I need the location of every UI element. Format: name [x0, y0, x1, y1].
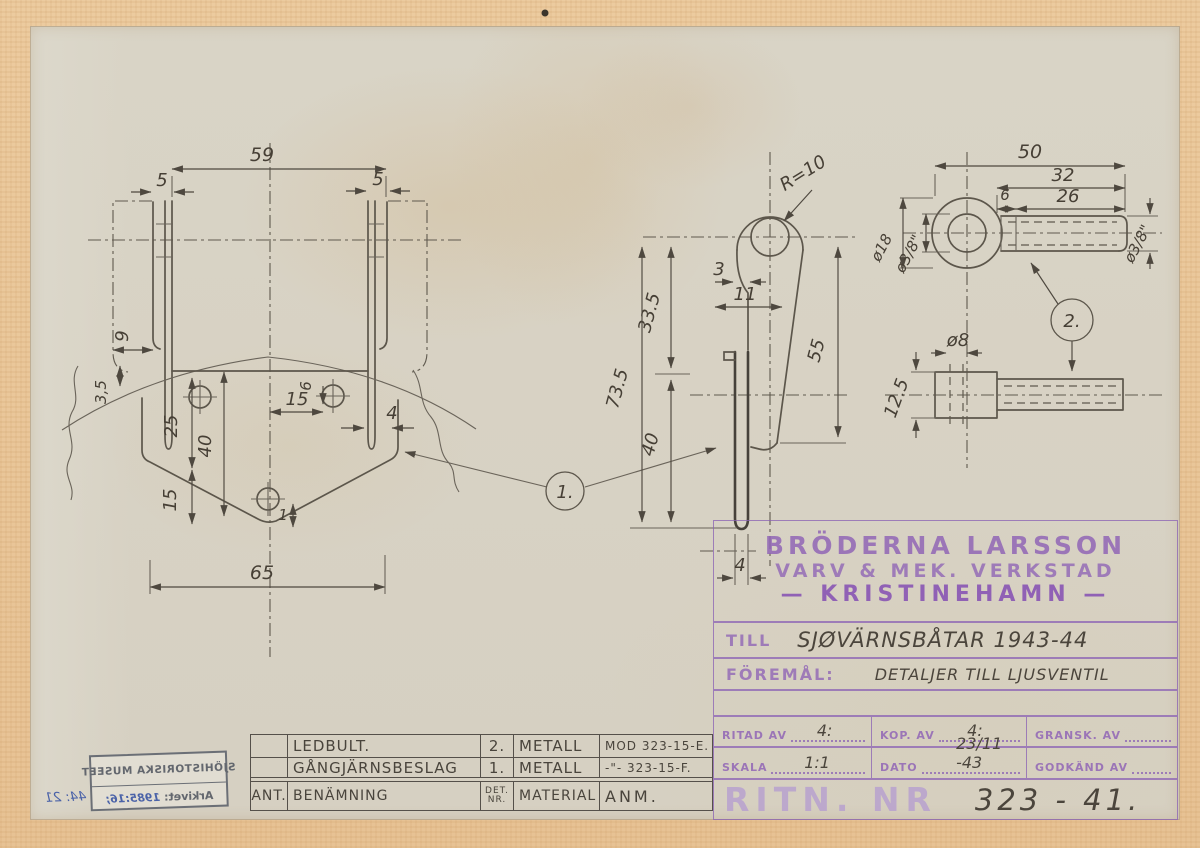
dim-3: 3 — [713, 259, 724, 280]
table-row: GÅNGJÄRNSBESLAG 1. METALL -"- 323-15-F. — [251, 758, 712, 778]
dim-15-horiz: 15 — [286, 389, 309, 410]
cell-ant — [251, 758, 288, 777]
dim-11: 11 — [734, 284, 757, 305]
view-right-eyebolt-top: 50 32 26 6 ø18 ø3/8" ø3/8" — [867, 141, 1162, 468]
skala-label: SKALA — [722, 761, 767, 774]
header-anm: ANM. — [600, 782, 712, 810]
dim-6: 6 — [297, 381, 315, 391]
skala-value: 1:1 — [804, 753, 830, 772]
scale-date-row: SKALA 1:1 DATO 23/11 -43 GODKÄND AV — [713, 747, 1178, 779]
cell-material: METALL — [514, 735, 600, 757]
foremal-row: FÖREMÅL: DETALJER TILL LJUSVENTIL — [713, 658, 1178, 690]
dim-5-left: 5 — [156, 170, 167, 191]
dim-50: 50 — [1018, 141, 1042, 163]
detail-2-label: 2. — [1063, 311, 1080, 332]
foremal-label: FÖREMÅL: — [726, 665, 835, 684]
dato-value: 23/11 -43 — [956, 734, 1020, 772]
stamp-handwritten-number: 44: 21 — [45, 789, 87, 805]
gransk-av-cell: GRANSK. AV — [1026, 717, 1177, 746]
ritn-nr-value: 323 - 41. — [975, 783, 1141, 817]
dim-26: 26 — [1057, 186, 1080, 207]
dim-1: 1 — [278, 506, 288, 524]
table-row: LEDBULT. 2. METALL MOD 323-15-E. — [251, 735, 712, 758]
cell-benamning: GÅNGJÄRNSBESLAG — [288, 758, 481, 777]
header-det-nr: DET. NR. — [481, 782, 514, 810]
stamp-arkivet-label: Arkivet: — [164, 788, 214, 803]
dim-6-right: 6 — [1000, 186, 1010, 204]
header-ant: ANT. — [251, 782, 288, 810]
gransk-av-label: GRANSK. AV — [1035, 729, 1121, 742]
ritn-nr-label: RITN. NR — [724, 780, 937, 819]
foremal-value: DETALJER TILL LJUSVENTIL — [875, 665, 1110, 684]
punch-hole — [542, 10, 549, 17]
cell-det-nr: 2. — [481, 735, 514, 757]
titleblock-spacer — [713, 690, 1178, 716]
dim-25: 25 — [161, 415, 182, 438]
ritad-av-value: 4: — [817, 721, 833, 740]
dim-55: 55 — [804, 337, 830, 365]
dim-dia38-left: ø3/8" — [891, 232, 926, 277]
ritad-av-cell: RITAD AV 4: — [714, 717, 871, 746]
dim-dia8: ø8 — [946, 330, 969, 351]
dim-4-slot: 4 — [386, 403, 397, 424]
stamp-archive-line: Arkivet: 1985:16; — [92, 783, 227, 812]
detail-1-label: 1. — [556, 482, 573, 503]
cell-anm: MOD 323-15-E. — [600, 735, 712, 757]
dim-40-middle: 40 — [638, 431, 664, 459]
dim-15-vert: 15 — [160, 489, 181, 512]
table-header-row: ANT. BENÄMNING DET. NR. MATERIAL ANM. — [251, 782, 712, 810]
dim-5-right: 5 — [372, 169, 383, 190]
company-name: BRÖDERNA LARSSON — [714, 531, 1177, 560]
dato-label: DATO — [880, 761, 918, 774]
dim-65: 65 — [250, 562, 274, 584]
company-header: BRÖDERNA LARSSON VARV & MEK. VERKSTAD — … — [713, 520, 1178, 622]
header-benamning: BENÄMNING — [288, 782, 481, 810]
archive-stamp: SJÖHISTORISKA MUSEET Arkivet: 1985:16; 4… — [25, 750, 229, 821]
dim-32: 32 — [1052, 165, 1075, 186]
view-left-hinge-bracket: 59 5 5 9 3,5 25 40 15 15 6 4 — [62, 143, 476, 657]
drawn-by-row: RITAD AV 4: KOP. AV 4: GRANSK. AV — [713, 716, 1178, 747]
dim-9: 9 — [112, 330, 133, 341]
stamp-box: SJÖHISTORISKA MUSEET Arkivet: 1985:16; — [89, 750, 229, 811]
dim-dia18: ø18 — [867, 231, 897, 265]
dato-cell: DATO 23/11 -43 — [871, 748, 1026, 778]
cell-benamning: LEDBULT. — [288, 735, 481, 757]
till-label: TILL — [726, 631, 771, 650]
cell-ant — [251, 735, 288, 757]
dim-12-5: 12.5 — [880, 376, 913, 421]
stamp-arkivet-value: 1985:16; — [105, 790, 160, 805]
cell-material: METALL — [514, 758, 600, 777]
cell-anm: -"- 323-15-F. — [600, 758, 712, 777]
stamp-museum-name: SJÖHISTORISKA MUSEET — [91, 753, 226, 788]
dim-33-5: 33.5 — [634, 291, 665, 335]
dim-40: 40 — [195, 435, 216, 458]
company-city: — KRISTINEHAMN — — [714, 582, 1177, 607]
view-right-eyebolt-side: ø8 12.5 — [880, 330, 1162, 438]
parts-table: LEDBULT. 2. METALL MOD 323-15-E. GÅNGJÄR… — [250, 734, 713, 811]
header-material: MATERIAL — [514, 782, 600, 810]
dim-73-5: 73.5 — [602, 367, 633, 411]
drawing-sheet: .ln{stroke:#5c564b;stroke-width:1.7;fill… — [0, 0, 1200, 848]
company-subtitle: VARV & MEK. VERKSTAD — [714, 560, 1177, 582]
till-row: TILL SJØVÄRNSBÅTAR 1943-44 — [713, 622, 1178, 658]
dim-59: 59 — [250, 144, 274, 166]
skala-cell: SKALA 1:1 — [714, 748, 871, 778]
kop-av-label: KOP. AV — [880, 729, 935, 742]
ritad-av-label: RITAD AV — [722, 729, 787, 742]
cell-det-nr: 1. — [481, 758, 514, 777]
detail-callout-1: 1. — [405, 448, 716, 510]
godkand-av-label: GODKÄND AV — [1035, 761, 1128, 774]
detail-callout-2: 2. — [1031, 263, 1093, 371]
till-value: SJØVÄRNSBÅTAR 1943-44 — [797, 628, 1088, 652]
drawing-number-row: RITN. NR 323 - 41. — [713, 779, 1178, 820]
dim-r10: R=10 — [776, 151, 830, 196]
godkand-av-cell: GODKÄND AV — [1026, 748, 1177, 778]
dim-3-5: 3,5 — [92, 380, 110, 404]
title-block: BRÖDERNA LARSSON VARV & MEK. VERKSTAD — … — [713, 520, 1178, 820]
